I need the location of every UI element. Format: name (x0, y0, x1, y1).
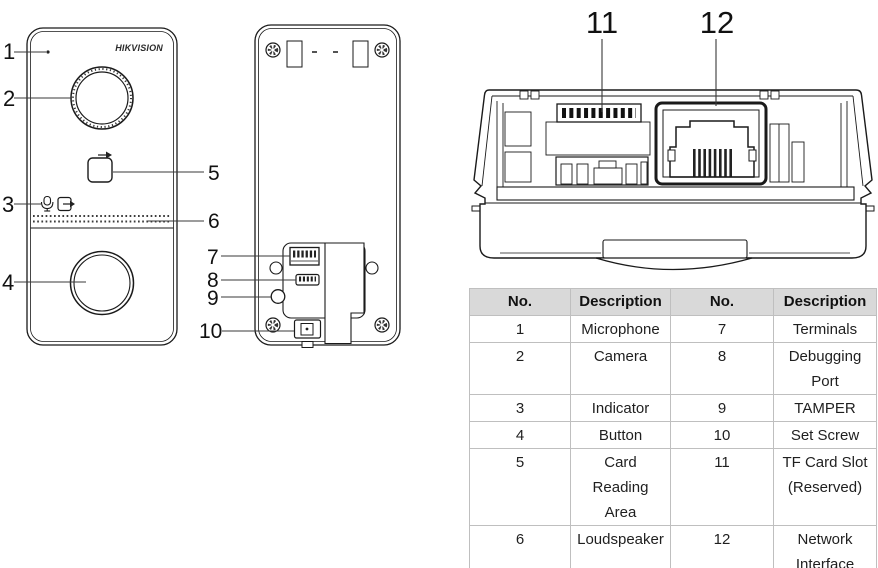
cell-no: 10 (671, 422, 774, 449)
callout-3: 3 (2, 192, 14, 217)
header-description-1: Description (571, 289, 671, 316)
cell-no: 9 (671, 395, 774, 422)
cell-desc: Card Reading Area (571, 449, 671, 526)
plate-hole-left (270, 262, 282, 274)
callout-12: 12 (700, 5, 734, 40)
cell-no: 2 (470, 343, 571, 395)
callout-9: 9 (207, 287, 219, 310)
callout-1: 1 (3, 39, 15, 64)
microphone-hole (46, 50, 49, 53)
top-slot (771, 91, 779, 99)
top-slot (760, 91, 768, 99)
tf-card-slot (546, 104, 650, 185)
screw-top-left (266, 43, 280, 57)
pcb-bar (497, 187, 854, 200)
cell-no: 1 (470, 316, 571, 343)
plate-hole-right (366, 262, 378, 274)
side-clip-left (472, 206, 480, 211)
screw-bottom-right (375, 318, 389, 332)
cell-no: 7 (671, 316, 774, 343)
cell-desc: TF Card Slot (Reserved) (774, 449, 877, 526)
terminals (290, 248, 319, 266)
callout-10: 10 (199, 320, 222, 343)
cell-no: 4 (470, 422, 571, 449)
top-slot (520, 91, 528, 99)
table-row: 6 Loudspeaker 12 Network Interface (470, 526, 877, 568)
table-row: 2 Camera 8 Debugging Port (470, 343, 877, 395)
table-row: 1 Microphone 7 Terminals (470, 316, 877, 343)
device-appearance-diagram: HIKVISION (0, 0, 878, 568)
callout-7: 7 (207, 246, 219, 269)
cell-no: 5 (470, 449, 571, 526)
hikvision-logo: HIKVISION (115, 43, 163, 53)
tamper-button (271, 290, 285, 304)
screw-bottom-left (266, 318, 280, 332)
cell-no: 8 (671, 343, 774, 395)
cell-desc: Microphone (571, 316, 671, 343)
table-row: 3 Indicator 9 TAMPER (470, 395, 877, 422)
back-view (255, 25, 400, 348)
cell-desc: Debugging Port (774, 343, 877, 395)
front-panel-outline (27, 28, 177, 345)
cell-desc: Indicator (571, 395, 671, 422)
cell-desc: Loudspeaker (571, 526, 671, 568)
network-interface (656, 103, 766, 184)
header-no-1: No. (470, 289, 571, 316)
callout-6: 6 (208, 210, 220, 233)
cell-desc: Camera (571, 343, 671, 395)
cell-desc: Network Interface (774, 526, 877, 568)
debugging-port (296, 275, 319, 286)
callout-2: 2 (3, 86, 15, 111)
header-no-2: No. (671, 289, 774, 316)
header-description-2: Description (774, 289, 877, 316)
cell-desc: TAMPER (774, 395, 877, 422)
callout-11: 11 (586, 5, 618, 40)
top-view (472, 90, 874, 270)
screw-top-right (375, 43, 389, 57)
cell-desc: Button (571, 422, 671, 449)
mount-slot-right (353, 41, 368, 67)
callout-5: 5 (208, 162, 220, 185)
cell-no: 6 (470, 526, 571, 568)
front-view: HIKVISION (27, 28, 177, 345)
mount-slot-left (287, 41, 302, 67)
cell-desc: Set Screw (774, 422, 877, 449)
cell-no: 12 (671, 526, 774, 568)
cell-no: 11 (671, 449, 774, 526)
side-clip-right (866, 206, 874, 211)
cell-no: 3 (470, 395, 571, 422)
callout-4: 4 (2, 270, 14, 295)
table-header-row: No. Description No. Description (470, 289, 877, 316)
table-row: 5 Card Reading Area 11 TF Card Slot (Res… (470, 449, 877, 526)
top-slot (531, 91, 539, 99)
table-row: 4 Button 10 Set Screw (470, 422, 877, 449)
legend-table: No. Description No. Description 1 Microp… (469, 288, 876, 568)
cell-desc: Terminals (774, 316, 877, 343)
